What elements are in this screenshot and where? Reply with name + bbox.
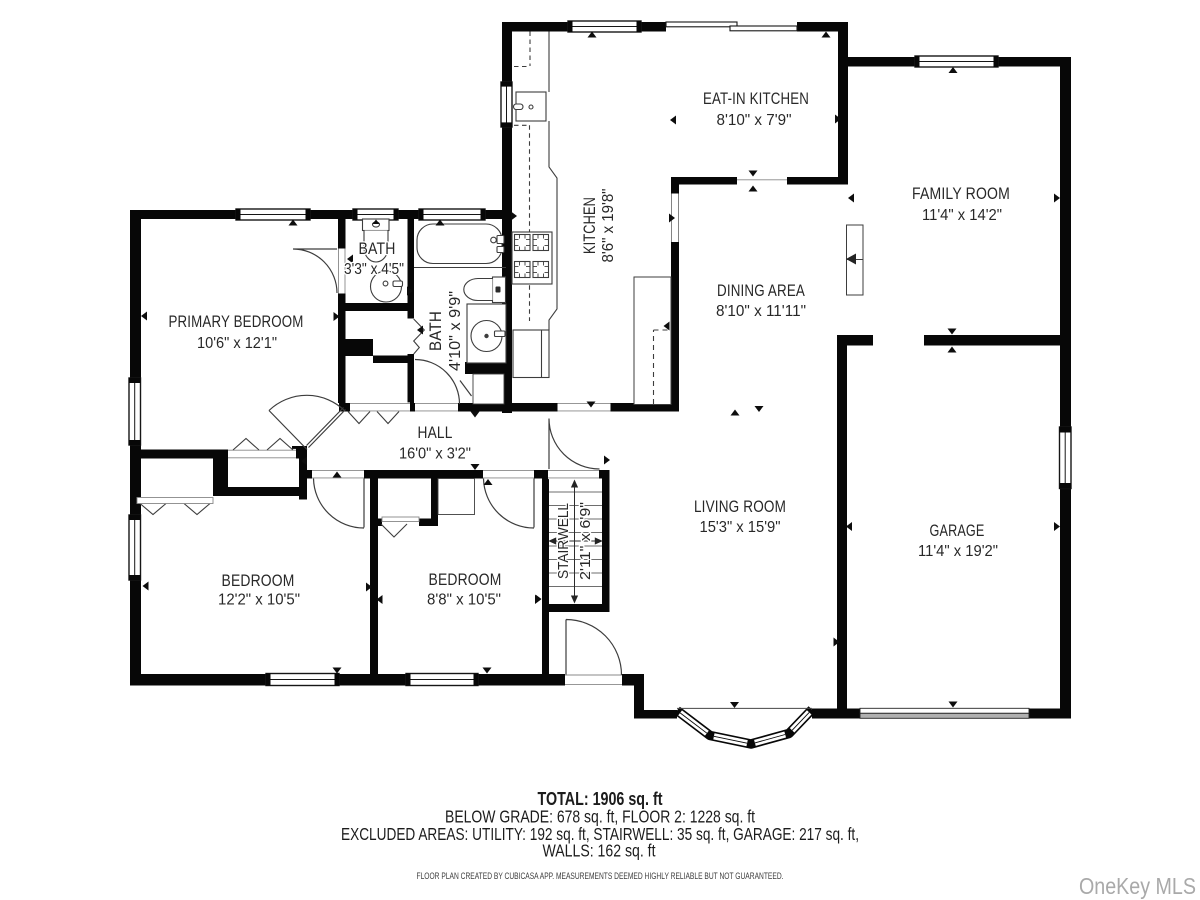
svg-text:FLOOR PLAN CREATED BY CUBICASA: FLOOR PLAN CREATED BY CUBICASA APP. MEAS… [417,871,784,882]
svg-text:KITCHEN: KITCHEN [581,197,599,254]
svg-text:4'10" x 9'9": 4'10" x 9'9" [447,291,464,371]
svg-text:BATH: BATH [359,240,396,258]
svg-text:BEDROOM: BEDROOM [429,571,502,589]
svg-text:8'6" x 19'8": 8'6" x 19'8" [600,189,617,263]
svg-text:11'4" x 14'2": 11'4" x 14'2" [922,207,1002,224]
svg-text:GARAGE: GARAGE [930,522,985,540]
svg-text:8'10" x 7'9": 8'10" x 7'9" [717,112,792,129]
svg-text:LIVING ROOM: LIVING ROOM [694,498,786,516]
svg-text:DINING AREA: DINING AREA [717,282,805,300]
svg-text:10'6" x 12'1": 10'6" x 12'1" [197,335,277,352]
svg-text:BATH: BATH [427,311,445,351]
svg-text:3'3" x 4'5": 3'3" x 4'5" [344,261,404,278]
svg-text:HALL: HALL [418,424,453,442]
svg-text:OneKey MLS: OneKey MLS [1079,873,1196,899]
svg-text:2'11" x 6'9": 2'11" x 6'9" [577,502,594,580]
svg-text:8'8" x 10'5": 8'8" x 10'5" [427,592,501,609]
svg-text:EAT-IN KITCHEN: EAT-IN KITCHEN [703,90,809,108]
svg-text:BEDROOM: BEDROOM [222,572,295,590]
svg-text:15'3" x 15'9": 15'3" x 15'9" [700,519,781,536]
svg-text:11'4" x 19'2": 11'4" x 19'2" [918,543,998,560]
svg-text:12'2" x 10'5": 12'2" x 10'5" [218,592,300,609]
svg-text:16'0" x 3'2": 16'0" x 3'2" [399,446,471,463]
svg-text:WALLS: 162 sq. ft: WALLS: 162 sq. ft [543,841,656,861]
svg-text:STAIRWELL: STAIRWELL [555,503,572,579]
svg-text:PRIMARY BEDROOM: PRIMARY BEDROOM [169,313,304,331]
svg-text:FAMILY ROOM: FAMILY ROOM [912,185,1010,203]
svg-text:8'10" x 11'11": 8'10" x 11'11" [716,303,806,320]
